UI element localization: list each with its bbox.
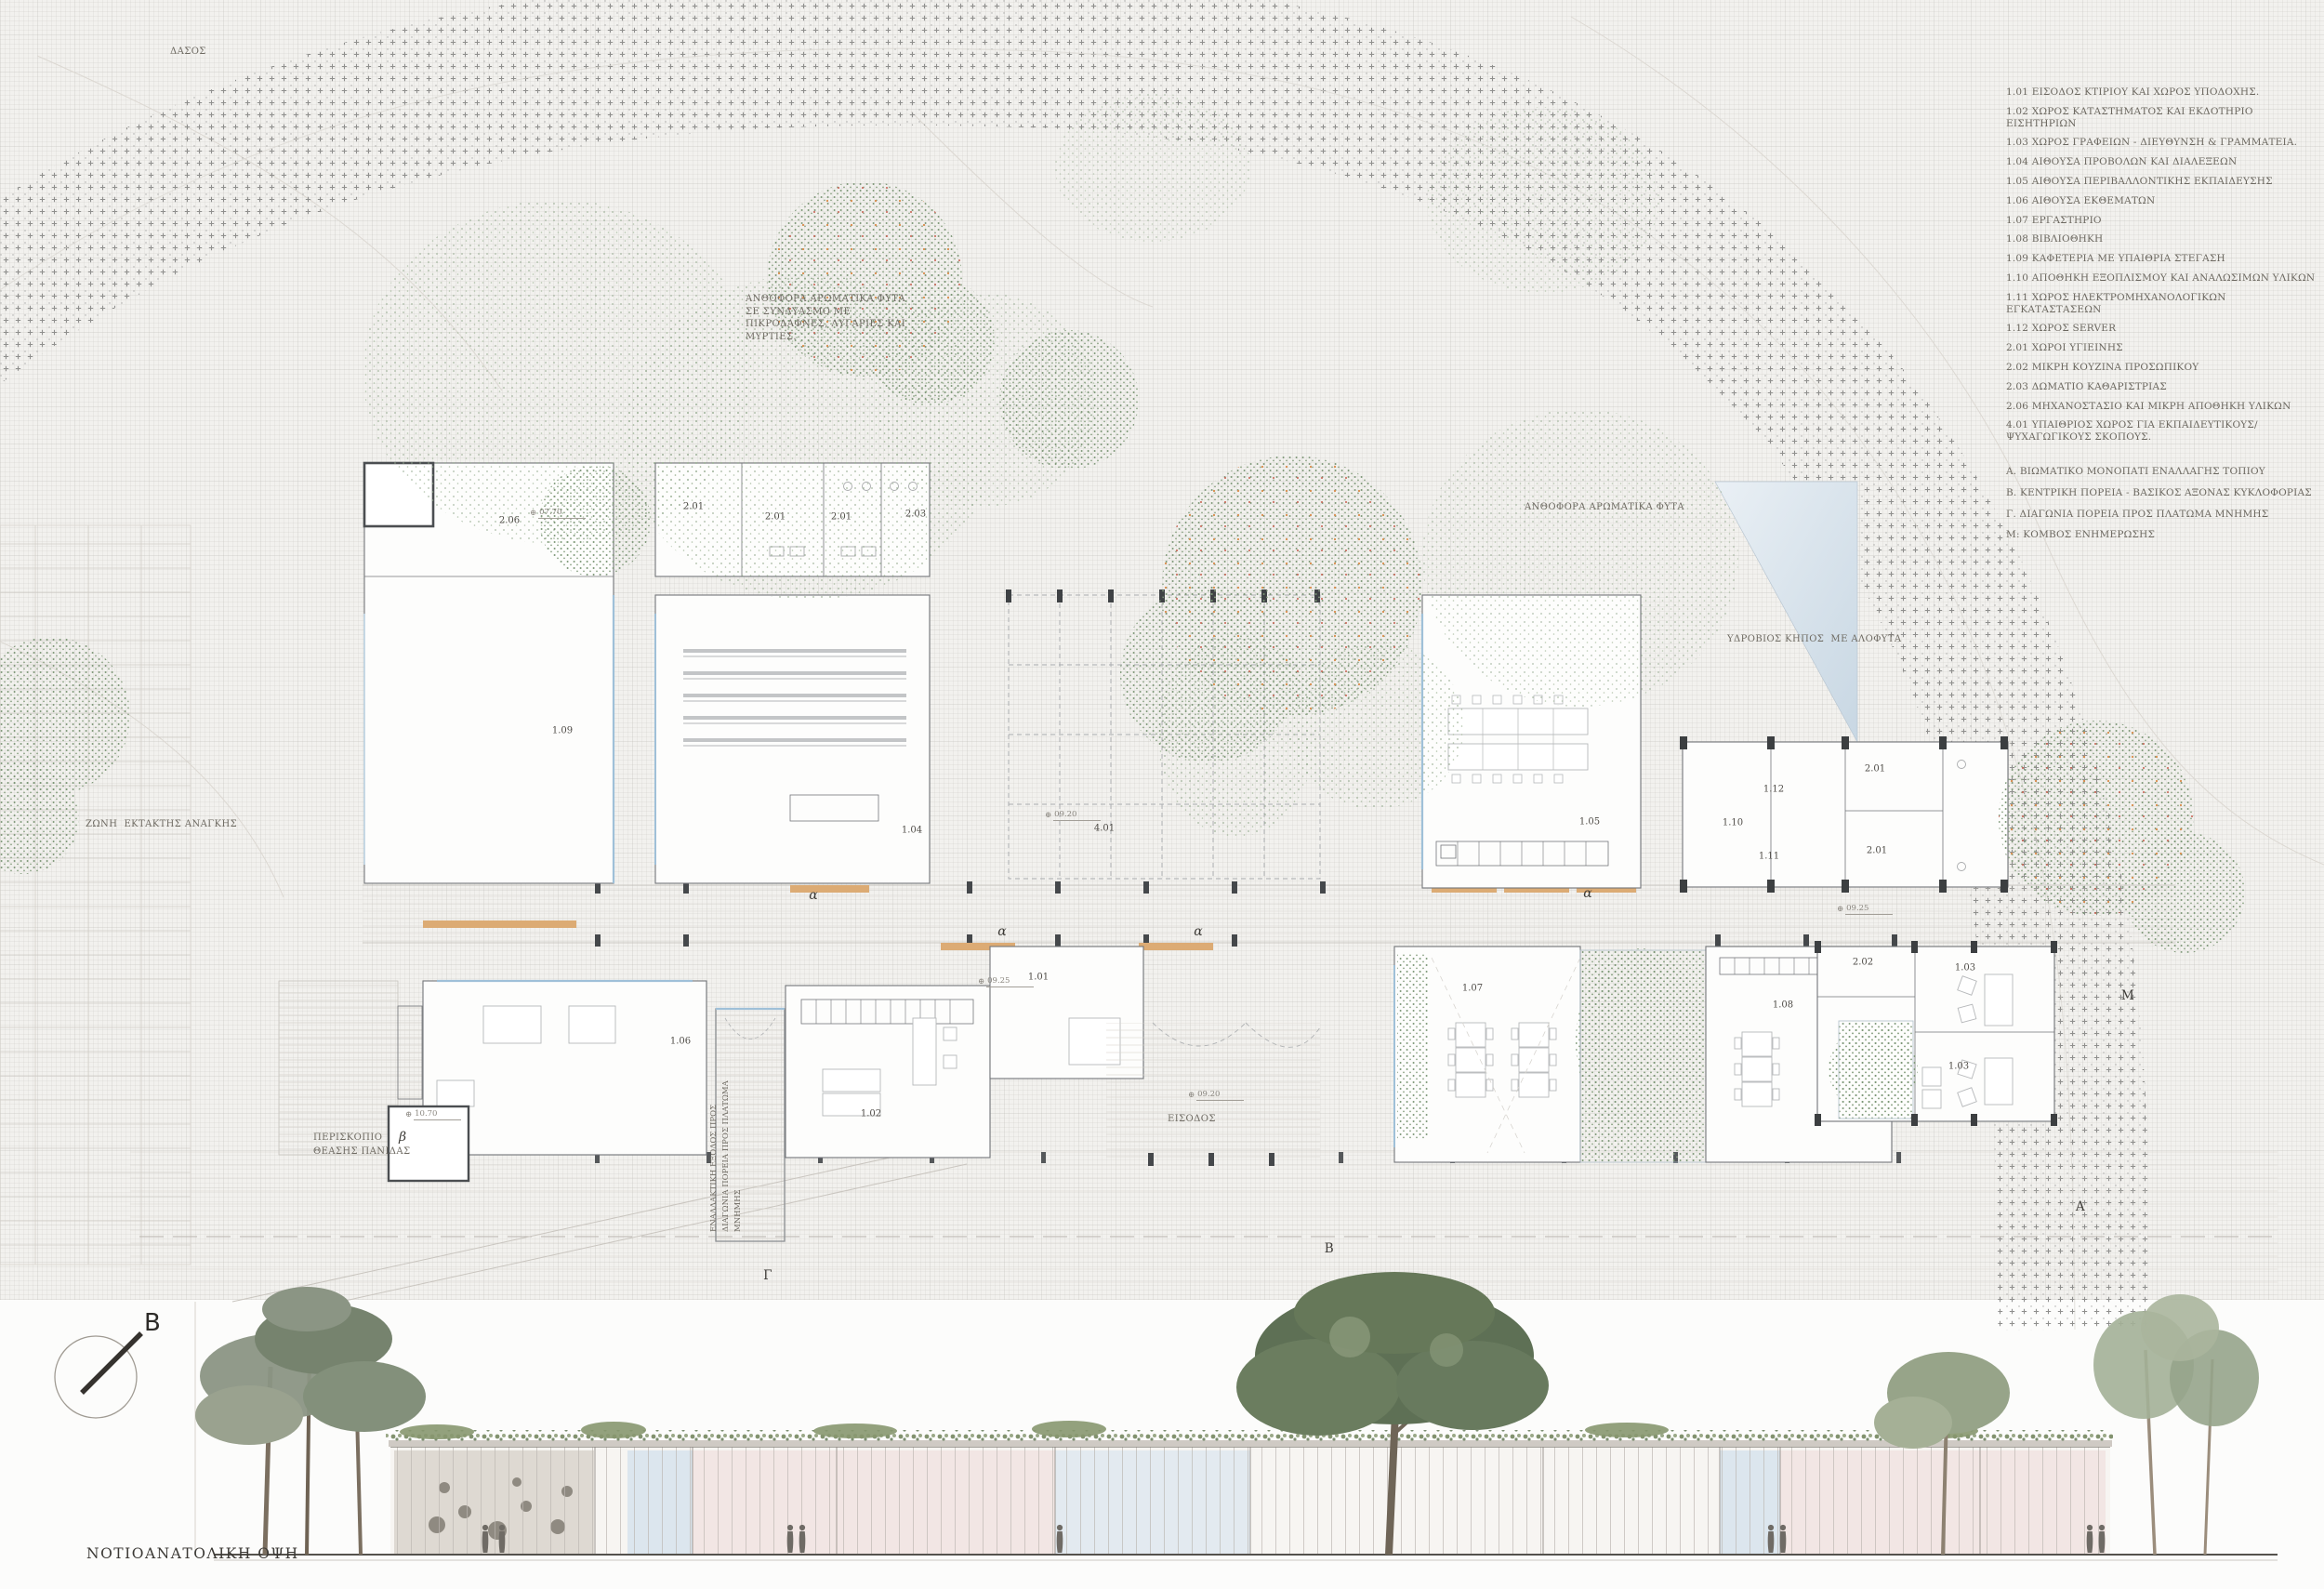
legend-item: 1.07 ΕΡΓΑΣΤΗΡΙΟ: [2006, 215, 2317, 227]
legend-item: 2.02 ΜΙΚΡΗ ΚΟΥΖΙΝΑ ΠΡΟΣΩΠΙΚΟΥ: [2006, 362, 2317, 374]
legend-item: 2.06 ΜΗΧΑΝΟΣΤΑΣΙΟ ΚΑΙ ΜΙΚΡΗ ΑΠΟΘΗΚΗ ΥΛΙΚ…: [2006, 401, 2317, 413]
legend-route: Γ. ΔΙΑΓΩΝΙΑ ΠΟΡΕΙΑ ΠΡΟΣ ΠΛΑΤΩΜΑ ΜΝΗΜΗΣ: [2006, 509, 2317, 521]
legend-route: Μ: ΚΟΜΒΟΣ ΕΝΗΜΕΡΩΣΗΣ: [2006, 529, 2317, 541]
legend-route: Α. ΒΙΩΜΑΤΙΚΟ ΜΟΝΟΠΑΤΙ ΕΝΑΛΛΑΓΗΣ ΤΟΠΙΟΥ: [2006, 466, 2317, 478]
water-garden: [1715, 482, 1857, 742]
legend-item: 1.03 ΧΩΡΟΣ ΓΡΑΦΕΙΩΝ - ΔΙΕΥΘΥΝΣΗ & ΓΡΑΜΜΑ…: [2006, 137, 2317, 149]
route-legend: Α. ΒΙΩΜΑΤΙΚΟ ΜΟΝΟΠΑΤΙ ΕΝΑΛΛΑΓΗΣ ΤΟΠΙΟΥ Β…: [2006, 466, 2317, 541]
legend-item: 1.10 ΑΠΟΘΗΚΗ ΕΞΟΠΛΙΣΜΟΥ ΚΑΙ ΑΝΑΛΩΣΙΜΩΝ Υ…: [2006, 272, 2317, 285]
room-legend: 1.01 ΕΙΣΟΔΟΣ ΚΤΙΡΙΟΥ ΚΑΙ ΧΩΡΟΣ ΥΠΟΔΟΧΗΣ.…: [2006, 86, 2317, 550]
legend-item: 1.11 ΧΩΡΟΣ ΗΛΕΚΤΡΟΜΗΧΑΝΟΛΟΓΙΚΩΝ ΕΓΚΑΤΑΣΤ…: [2006, 292, 2317, 316]
site-plan-drawing: [0, 0, 2324, 1589]
elevation-caption: ΝΟΤΙΟΑΝΑΤΟΛΙΚΗ ΟΨΗ: [86, 1545, 299, 1562]
elevation-drawing: [55, 1272, 2278, 1560]
north-label: B: [144, 1309, 161, 1337]
legend-item: 1.06 ΑΙΘΟΥΣΑ ΕΚΘΕΜΑΤΩΝ: [2006, 195, 2317, 207]
legend-item: 1.05 ΑΙΘΟΥΣΑ ΠΕΡΙΒΑΛΛΟΝΤΙΚΗΣ ΕΚΠΑΙΔΕΥΣΗΣ: [2006, 176, 2317, 188]
architectural-sheet: 1.01 ΕΙΣΟΔΟΣ ΚΤΙΡΙΟΥ ΚΑΙ ΧΩΡΟΣ ΥΠΟΔΟΧΗΣ.…: [0, 0, 2324, 1589]
annotation-alt-exit: ΕΝΑΛΛΑΚΤΙΚΗ ΕΞΟΔΟΣ ΠΡΟΣ ΔΙΑΓΩΝΙΑ ΠΟΡΕΙΑ …: [708, 1074, 744, 1232]
legend-item: 2.03 ΔΩΜΑΤΙΟ ΚΑΘΑΡΙΣΤΡΙΑΣ: [2006, 381, 2317, 393]
central-corridor: [363, 881, 2175, 950]
legend-item: 1.04 ΑΙΘΟΥΣΑ ΠΡΟΒΟΛΩΝ ΚΑΙ ΔΙΑΛΕΞΕΩΝ: [2006, 156, 2317, 168]
north-compass-icon: [55, 1333, 141, 1418]
legend-item: 2.01 ΧΩΡΟΙ ΥΓΙΕΙΝΗΣ: [2006, 342, 2317, 354]
legend-route: Β. ΚΕΝΤΡΙΚΗ ΠΟΡΕΙΑ - ΒΑΣΙΚΟΣ ΑΞΟΝΑΣ ΚΥΚΛ…: [2006, 487, 2317, 499]
legend-item: 1.01 ΕΙΣΟΔΟΣ ΚΤΙΡΙΟΥ ΚΑΙ ΧΩΡΟΣ ΥΠΟΔΟΧΗΣ.: [2006, 86, 2317, 99]
legend-item: 1.08 ΒΙΒΛΙΟΘΗΚΗ: [2006, 233, 2317, 245]
legend-item: 1.09 ΚΑΦΕΤΕΡΙΑ ΜΕ ΥΠΑΙΘΡΙΑ ΣΤΕΓΑΣΗ: [2006, 253, 2317, 265]
legend-item: 4.01 ΥΠΑΙΘΡΙΟΣ ΧΩΡΟΣ ΓΙΑ ΕΚΠΑΙΔΕΥΤΙΚΟΥΣ/…: [2006, 419, 2317, 444]
legend-item: 1.02 ΧΩΡΟΣ ΚΑΤΑΣΤΗΜΑΤΟΣ ΚΑΙ ΕΚΔΟΤΗΡΙΟ ΕΙ…: [2006, 106, 2317, 130]
legend-item: 1.12 ΧΩΡΟΣ SERVER: [2006, 323, 2317, 335]
